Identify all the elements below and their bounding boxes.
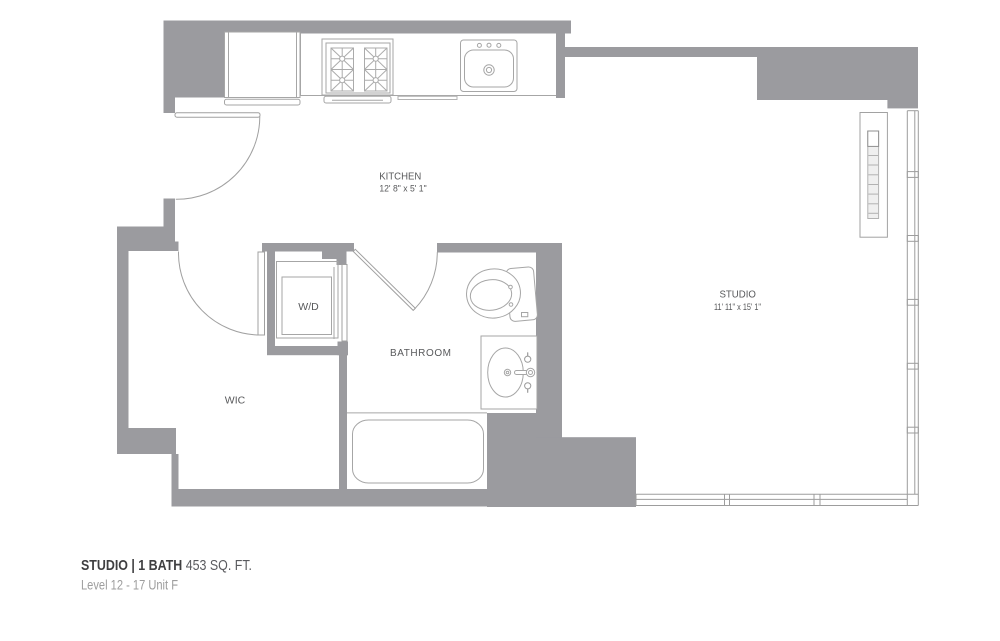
- svg-text:BATHROOM: BATHROOM: [390, 348, 451, 359]
- svg-text:Level 12 - 17 Unit F: Level 12 - 17 Unit F: [81, 578, 178, 593]
- svg-text:STUDIO: STUDIO: [719, 289, 756, 301]
- svg-text:11' 11" x 15' 1": 11' 11" x 15' 1": [714, 302, 761, 313]
- svg-text:STUDIO | 1 BATH 453 SQ. FT.: STUDIO | 1 BATH 453 SQ. FT.: [81, 557, 252, 574]
- svg-text:W/D: W/D: [298, 301, 319, 313]
- svg-text:WIC: WIC: [225, 395, 246, 407]
- svg-text:12' 8" x 5' 1": 12' 8" x 5' 1": [379, 184, 426, 195]
- svg-text:KITCHEN: KITCHEN: [379, 171, 421, 182]
